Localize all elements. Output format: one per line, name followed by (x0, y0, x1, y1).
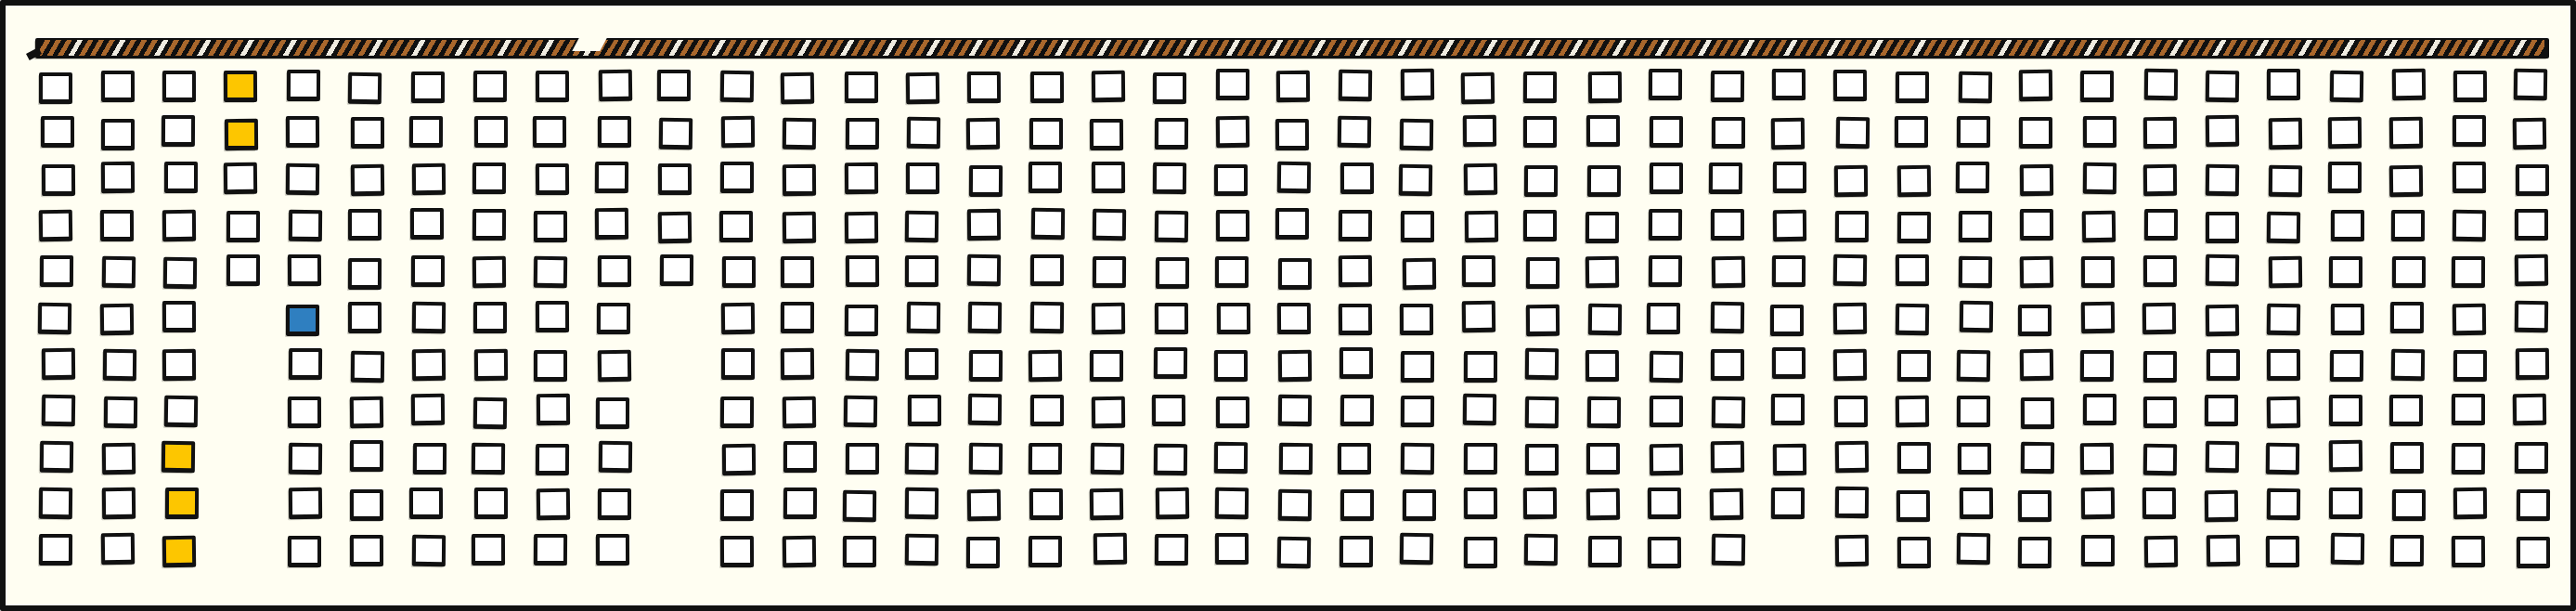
grid-square (2328, 162, 2362, 193)
grid-square (1588, 536, 1622, 567)
comic-frame (0, 0, 2576, 611)
grid-square (350, 396, 383, 428)
grid-square (1215, 255, 1249, 287)
grid-square (409, 116, 443, 148)
grid-square (1276, 71, 1310, 102)
grid-square (2266, 443, 2299, 474)
grid-square (164, 396, 198, 427)
grid-square (350, 535, 383, 566)
grid-square (2267, 212, 2300, 243)
grid-square (2205, 395, 2238, 426)
grid-square (1647, 303, 1680, 334)
grid-square (2515, 442, 2548, 474)
grid-square (1897, 212, 1931, 243)
grid-square (722, 443, 756, 474)
grid-square (783, 212, 816, 243)
grid-square (2389, 164, 2423, 196)
grid-square (1464, 163, 1497, 195)
grid-square (42, 163, 75, 195)
grid-square (288, 254, 321, 286)
grid-square (1711, 441, 1744, 473)
grid-square (1586, 115, 1620, 147)
grid-square (2328, 117, 2362, 149)
grid-square (657, 163, 691, 195)
grid-square (1092, 162, 1125, 193)
grid-square (657, 70, 691, 101)
grid-square (1526, 257, 1560, 289)
grid-square (2142, 303, 2176, 334)
grid-square (1029, 349, 1062, 381)
grid-square (658, 212, 692, 243)
grid-square (968, 350, 1002, 382)
grid-square (2515, 209, 2548, 240)
grid-square (1029, 162, 1062, 193)
grid-square (536, 487, 569, 519)
grid-square (966, 537, 1000, 568)
grid-square (1090, 350, 1123, 382)
grid-square (2018, 536, 2052, 567)
grid-square (968, 165, 1002, 197)
grid-square (1650, 116, 1683, 148)
grid-square (846, 255, 879, 287)
grid-square (2514, 301, 2547, 332)
grid-square (101, 71, 135, 102)
grid-square (1523, 116, 1557, 148)
grid-square (1833, 70, 1867, 101)
grid-square (412, 301, 446, 332)
grid-square (2020, 256, 2053, 288)
grid-square (783, 441, 817, 473)
grid-square (1153, 72, 1186, 104)
grid-square (2081, 256, 2115, 288)
grid-square (472, 209, 506, 240)
grid-square (1029, 536, 1062, 567)
grid-square (2269, 118, 2302, 149)
grid-square (2267, 488, 2300, 520)
grid-square (2206, 254, 2239, 286)
grid-square (100, 210, 134, 241)
grid-square (2516, 164, 2549, 196)
grid-square (1155, 534, 1188, 565)
grid-square (1463, 115, 1496, 147)
grid-square (783, 535, 816, 566)
grid-square (2083, 394, 2116, 425)
grid-square (1771, 394, 1805, 425)
grid-square (1772, 255, 1806, 287)
yellow-filled-square (224, 71, 257, 102)
grid-square (2452, 443, 2485, 474)
grid-square (2081, 535, 2115, 566)
grid-square (2452, 256, 2485, 288)
grid-square (967, 209, 1001, 240)
grid-square (1585, 350, 1618, 382)
grid-square (1215, 487, 1249, 519)
grid-square (1399, 164, 1432, 196)
grid-square (472, 256, 505, 288)
grid-square (2143, 164, 2177, 196)
grid-square (1029, 254, 1063, 286)
grid-square (1339, 304, 1372, 335)
grid-square (783, 487, 816, 519)
grid-square (1402, 257, 1435, 289)
grid-square (1896, 254, 1929, 286)
grid-square (1093, 209, 1126, 240)
grid-square (2390, 535, 2424, 566)
grid-square (1278, 443, 1312, 474)
grid-square (1155, 487, 1188, 519)
grid-square (1833, 349, 1867, 381)
grid-square (102, 487, 136, 519)
grid-square (966, 118, 1000, 149)
grid-square (102, 443, 136, 474)
grid-square (2019, 349, 2052, 381)
grid-square (2391, 210, 2425, 241)
grid-square (1338, 255, 1371, 287)
grid-square (905, 255, 938, 287)
grid-square (39, 71, 72, 103)
grid-square (473, 302, 507, 333)
grid-square (2453, 304, 2486, 335)
grid-square (536, 444, 569, 475)
grid-square (721, 116, 755, 148)
grid-square (537, 394, 570, 425)
grid-square (1091, 71, 1124, 102)
grid-square (349, 440, 382, 472)
grid-square (2453, 162, 2486, 193)
grid-square (1526, 304, 1560, 335)
grid-square (1216, 69, 1249, 100)
grid-square (598, 488, 631, 520)
grid-square (2144, 209, 2178, 240)
grid-square (1710, 301, 1743, 332)
grid-square (1276, 162, 1310, 193)
grid-square (102, 255, 136, 287)
grid-square (1339, 210, 1372, 241)
grid-square (596, 303, 629, 334)
grid-square (908, 395, 941, 426)
grid-square (1090, 119, 1123, 150)
grid-square (2452, 394, 2485, 425)
grid-square (1648, 536, 1681, 567)
grid-square (163, 257, 197, 289)
grid-square (41, 348, 74, 380)
grid-square (410, 208, 444, 240)
grid-square (2269, 165, 2302, 197)
grid-square (1897, 350, 1931, 382)
grid-square (1216, 396, 1249, 428)
grid-square (1464, 487, 1497, 519)
grid-square (905, 487, 938, 519)
grid-square (534, 211, 567, 242)
grid-square (1835, 487, 1869, 518)
grid-square (533, 116, 566, 148)
grid-square (2516, 348, 2549, 380)
yellow-filled-square (162, 441, 195, 473)
grid-square (1711, 349, 1744, 381)
yellow-filled-square (165, 487, 199, 519)
grid-square (1959, 255, 1992, 287)
grid-square (2267, 396, 2300, 428)
grid-square (1278, 258, 1312, 290)
grid-square (1586, 443, 1620, 474)
grid-square (288, 396, 321, 428)
grid-square (1400, 119, 1433, 150)
grid-square (1834, 395, 1868, 426)
grid-square (39, 487, 72, 519)
grid-square (101, 119, 135, 150)
grid-square (1586, 487, 1620, 519)
grid-square (100, 304, 134, 335)
grid-square (2206, 115, 2239, 147)
grid-square (2517, 537, 2550, 568)
grid-square (967, 71, 1001, 103)
grid-square (1586, 212, 1619, 243)
grid-square (1340, 162, 1374, 194)
grid-square (1957, 396, 1990, 427)
grid-square (2389, 395, 2423, 426)
grid-square (536, 163, 569, 195)
grid-square (2020, 209, 2053, 240)
grid-square (1587, 304, 1621, 335)
grid-square (2018, 490, 2052, 522)
grid-square (1092, 396, 1125, 428)
grid-square (905, 443, 938, 474)
grid-square (1029, 443, 1062, 474)
grid-square (2082, 211, 2116, 242)
grid-square (1091, 443, 1124, 474)
grid-square (1958, 443, 1991, 474)
grid-square (1711, 396, 1744, 427)
grid-square (599, 441, 632, 473)
grid-square (1712, 534, 1745, 565)
grid-square (1277, 536, 1311, 567)
grid-square (289, 487, 322, 519)
grid-square (1649, 255, 1682, 287)
grid-square (2019, 70, 2052, 101)
grid-square (1276, 303, 1310, 334)
grid-square (1093, 256, 1126, 288)
grid-square (1401, 443, 1434, 474)
grid-square (1275, 119, 1309, 150)
grid-square (2269, 256, 2302, 288)
grid-square (1401, 69, 1434, 100)
grid-square (289, 348, 322, 380)
grid-square (2453, 487, 2487, 519)
grid-square (534, 256, 567, 288)
grid-square (1587, 396, 1621, 428)
grid-square (2206, 71, 2239, 102)
grid-square (288, 536, 321, 567)
grid-square (2144, 69, 2178, 100)
grid-square (227, 254, 260, 286)
grid-square (845, 71, 878, 103)
grid-square (162, 115, 195, 147)
grid-square (1029, 118, 1063, 149)
grid-square (2143, 396, 2177, 428)
grid-square (1588, 71, 1622, 103)
grid-square (1523, 210, 1557, 241)
grid-square (2080, 443, 2114, 474)
grid-square (1216, 116, 1249, 148)
grid-square (351, 117, 384, 149)
grid-square (1711, 209, 1744, 240)
grid-square (720, 536, 754, 567)
grid-square (534, 533, 567, 565)
grid-square (1463, 443, 1496, 474)
grid-square (783, 118, 816, 149)
grid-square (103, 396, 136, 428)
grid-square (2329, 395, 2362, 426)
grid-square (905, 211, 938, 242)
grid-square (845, 349, 878, 381)
grid-square (721, 303, 755, 334)
grid-square (721, 348, 755, 380)
grid-square (2330, 71, 2363, 102)
grid-square (1650, 351, 1683, 383)
grid-square (1957, 533, 1990, 565)
grid-square (1712, 117, 1745, 149)
grid-square (286, 115, 319, 147)
grid-square (1214, 350, 1248, 382)
grid-square (2331, 210, 2364, 241)
grid-square (2329, 487, 2362, 519)
grid-square (843, 396, 876, 427)
grid-square (2453, 350, 2487, 382)
grid-square (2143, 255, 2177, 287)
grid-square (1835, 535, 1869, 566)
grid-square (906, 72, 939, 104)
grid-square (1895, 71, 1928, 103)
grid-square (162, 71, 196, 102)
grid-square (474, 116, 508, 148)
grid-square (1465, 211, 1498, 242)
grid-square (1523, 487, 1557, 519)
grid-square (2330, 350, 2363, 382)
grid-square (1897, 442, 1931, 474)
grid-square (1835, 117, 1869, 149)
grid-square (411, 163, 445, 195)
grid-square (40, 255, 73, 287)
grid-square (2142, 487, 2176, 519)
grid-square (1523, 71, 1557, 103)
grid-square (1957, 350, 1990, 382)
grid-square (1463, 394, 1496, 425)
grid-square (2206, 441, 2239, 473)
grid-square (1650, 396, 1683, 427)
grid-square (2453, 71, 2487, 102)
grid-square (1959, 487, 1992, 519)
grid-square (351, 163, 384, 195)
grid-square (846, 443, 879, 474)
grid-square (1586, 256, 1619, 288)
grid-square (783, 396, 816, 427)
grid-square (101, 533, 135, 565)
grid-square (1278, 489, 1312, 521)
grid-square (1708, 162, 1741, 194)
grid-square (162, 210, 195, 241)
grid-square (781, 256, 814, 288)
grid-square (1712, 256, 1745, 288)
grid-square (1031, 208, 1065, 240)
grid-square (1217, 303, 1250, 334)
grid-square (1216, 210, 1249, 241)
grid-square (1773, 444, 1806, 475)
grid-square (413, 443, 447, 474)
grid-square (2389, 116, 2423, 148)
grid-square (1834, 165, 1868, 197)
grid-square (783, 164, 816, 196)
grid-square (967, 489, 1001, 521)
grid-square (1524, 534, 1558, 565)
grid-square (2143, 444, 2177, 475)
grid-square (598, 255, 631, 287)
grid-square (1338, 70, 1371, 101)
grid-square (1156, 257, 1189, 289)
grid-square (2021, 397, 2054, 429)
grid-square (1711, 71, 1744, 102)
grid-square (719, 211, 753, 242)
grid-square (534, 350, 567, 382)
grid-square (2513, 117, 2546, 149)
grid-square (1214, 442, 1248, 474)
grid-square (720, 71, 754, 102)
grid-square (1091, 303, 1124, 334)
grid-square (39, 534, 72, 565)
grid-square (41, 116, 74, 148)
grid-square (905, 348, 938, 380)
grid-square (535, 301, 568, 332)
grid-square (285, 163, 318, 195)
grid-square (41, 395, 74, 426)
grid-square (1956, 162, 1989, 193)
grid-square (2207, 349, 2240, 381)
grid-square (412, 535, 446, 566)
grid-square (474, 487, 508, 519)
grid-square (2391, 349, 2425, 381)
grid-square (1277, 394, 1311, 425)
grid-square (2205, 490, 2238, 522)
grid-square (968, 302, 1002, 333)
grid-square (720, 162, 754, 193)
grid-square (845, 211, 878, 242)
grid-square (596, 397, 629, 429)
grid-square (1030, 395, 1064, 426)
grid-square (2329, 256, 2362, 288)
grid-square (906, 162, 939, 194)
grid-square (348, 258, 382, 290)
grid-square (1400, 304, 1433, 335)
grid-square (1587, 165, 1621, 197)
grid-square (2080, 487, 2114, 519)
grid-square (2331, 533, 2364, 565)
grid-square (1464, 537, 1497, 568)
grid-square (1154, 444, 1187, 475)
grid-square (289, 210, 322, 241)
grid-square (1090, 488, 1123, 520)
grid-square (351, 351, 384, 383)
grid-square (2514, 69, 2547, 100)
grid-square (1525, 444, 1559, 475)
grid-square (1215, 533, 1249, 565)
grid-square (1030, 301, 1064, 332)
grid-square (1154, 118, 1187, 149)
grid-square (2144, 535, 2178, 566)
grid-square (2392, 256, 2426, 288)
grid-square (781, 71, 814, 103)
grid-square (2392, 69, 2426, 100)
grid-square (1340, 489, 1374, 521)
grid-square (536, 71, 569, 102)
